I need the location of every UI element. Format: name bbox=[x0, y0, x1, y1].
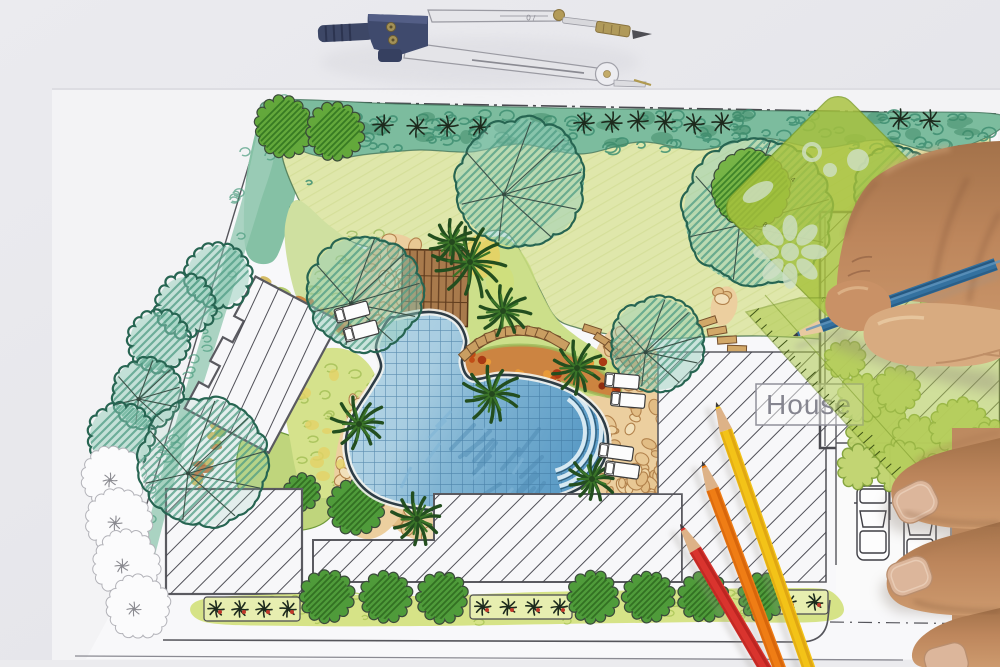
svg-text:0 /: 0 / bbox=[526, 13, 536, 23]
